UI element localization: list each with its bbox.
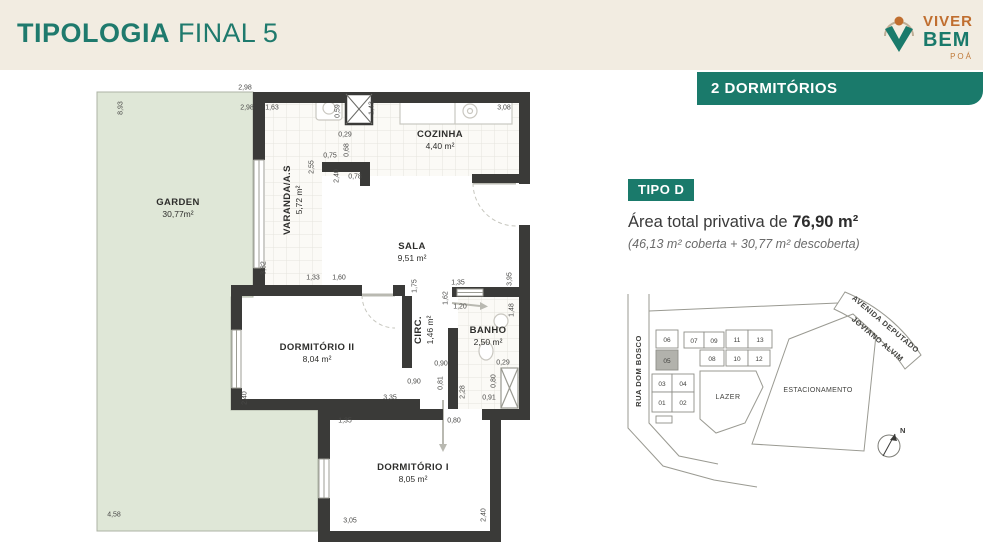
bath-sink xyxy=(494,314,508,328)
shaft xyxy=(346,94,372,124)
unit-label-08: 08 xyxy=(708,356,716,363)
north-label: N xyxy=(900,426,905,435)
lazer-label: LAZER xyxy=(715,394,740,401)
street-left-label: RUA DOM BOSCO xyxy=(634,335,643,407)
floor-plan-drawing: 06 07 09 11 13 05 08 10 12 03 04 01 02 R… xyxy=(0,0,983,553)
unit-label-01: 01 xyxy=(658,400,666,407)
unit-label-13: 13 xyxy=(756,337,764,344)
lazer-area xyxy=(700,371,763,433)
unit-label-03: 03 xyxy=(658,381,666,388)
avenue-band xyxy=(834,292,921,369)
tiled-floors xyxy=(265,92,519,409)
page: TIPOLOGIAFINAL 5 VIVER BEM POÁ 2 DORMITÓ… xyxy=(0,0,983,553)
unit-label-10: 10 xyxy=(733,356,741,363)
estacionamento-label: ESTACIONAMENTO xyxy=(783,387,853,394)
unit-label-07: 07 xyxy=(690,338,698,345)
north-arrow: N xyxy=(878,426,905,457)
entry-door-arc xyxy=(473,183,516,226)
dorm2-door-arc xyxy=(362,295,395,328)
site-map: 06 07 09 11 13 05 08 10 12 03 04 01 02 R… xyxy=(628,292,921,487)
site-top-line xyxy=(649,303,838,311)
unit-label-02: 02 xyxy=(679,400,687,407)
toilet xyxy=(479,342,493,360)
shower-box xyxy=(501,368,518,408)
dorm1-door-arrow xyxy=(439,400,447,452)
unit-label-04: 04 xyxy=(679,381,687,388)
unit-label-06: 06 xyxy=(663,337,671,344)
unit-label-12: 12 xyxy=(755,356,763,363)
unit-label-11: 11 xyxy=(734,337,741,344)
unit-label-05: 05 xyxy=(663,358,671,365)
unit-label-09: 09 xyxy=(710,338,718,345)
